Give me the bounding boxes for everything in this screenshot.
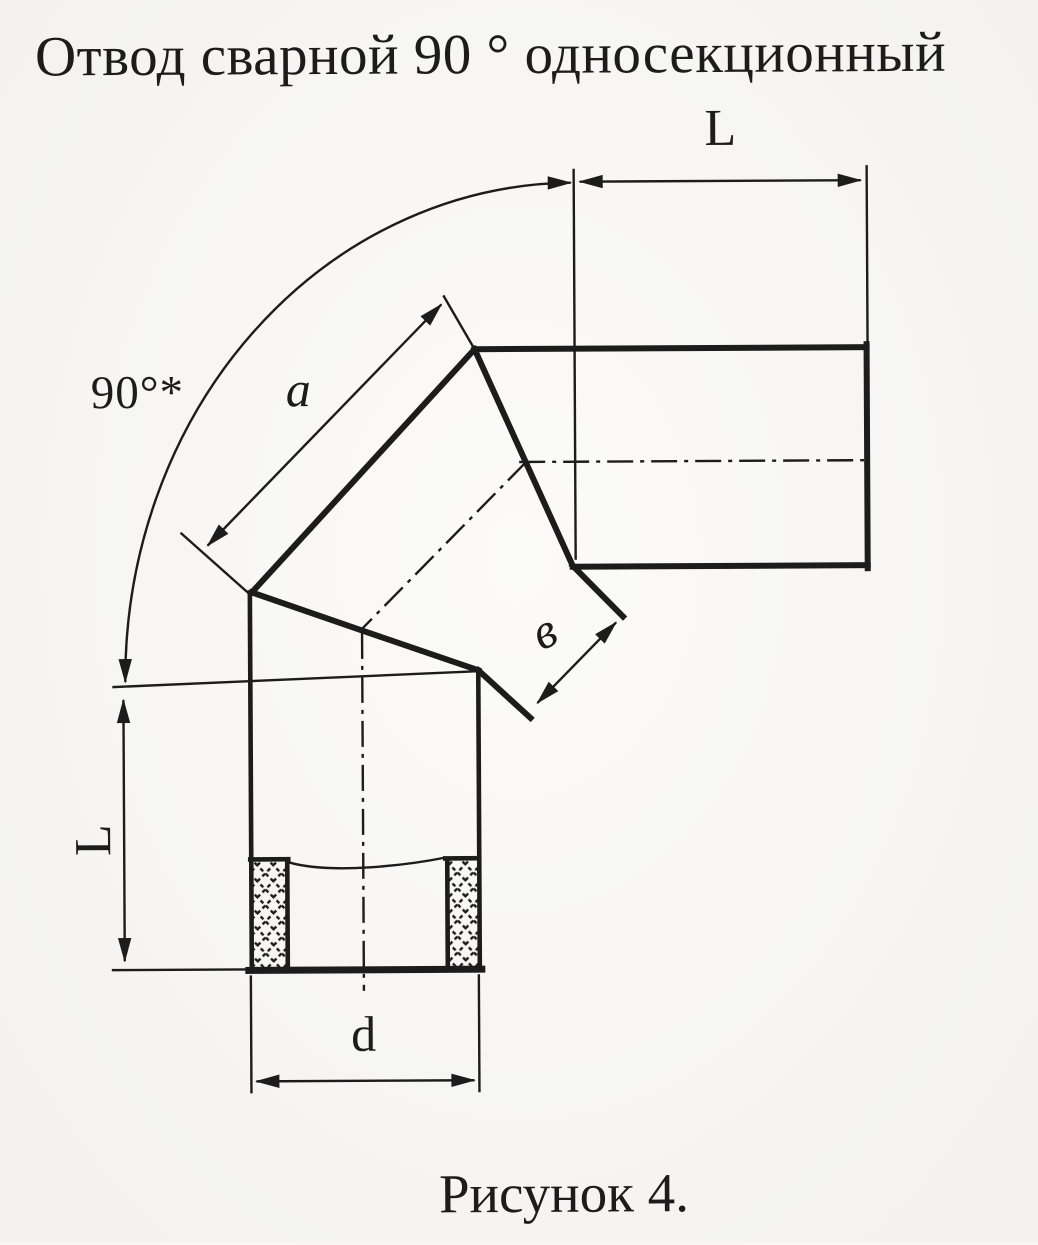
right-pipe-end-edge xyxy=(867,344,868,568)
upper-weld-seam xyxy=(475,349,573,567)
figure-caption: Рисунок 4. xyxy=(439,1165,689,1221)
label-length-top: L xyxy=(704,103,736,155)
vertical-pipe-left-edge xyxy=(250,592,252,970)
label-length-left: L xyxy=(68,805,120,875)
dimension-line-d xyxy=(256,1080,474,1081)
centerline-horizontal-pipe xyxy=(519,460,871,462)
extension-line-d-left xyxy=(251,975,252,1093)
extension-line-a-lower xyxy=(181,532,250,594)
extension-line-top-left xyxy=(574,169,576,560)
lower-weld-seam xyxy=(252,591,478,671)
dimension-line-L-left xyxy=(123,700,124,961)
extension-line-d-right xyxy=(479,974,480,1092)
extension-line-left-bottom xyxy=(112,969,248,970)
drawing-sheet: Отвод сварной 90 ° односекционный xyxy=(0,0,1038,1245)
right-pipe-bottom-edge xyxy=(573,565,868,567)
left-socket-hatch xyxy=(253,861,286,968)
extension-line-left-top xyxy=(112,671,478,687)
right-socket-inner-wall xyxy=(447,859,448,967)
label-side-a: a xyxy=(286,364,311,414)
extension-line-top-right xyxy=(867,165,868,344)
scanned-page: Отвод сварной 90 ° односекционный xyxy=(0,0,1038,1242)
centerline-vertical-pipe xyxy=(362,633,364,991)
centerline-miter-section xyxy=(359,462,527,631)
vertical-pipe-right-edge xyxy=(478,670,480,969)
angle-arc-90deg xyxy=(123,183,574,682)
right-pipe-top-edge xyxy=(475,347,867,349)
dimension-line-L-top xyxy=(580,180,861,181)
right-socket-hatch xyxy=(448,858,478,967)
left-socket-inner-wall xyxy=(287,862,288,968)
label-angle-90: 90°* xyxy=(91,370,185,417)
label-diameter-d: d xyxy=(351,1009,376,1059)
elbow-technical-drawing xyxy=(0,0,1038,1245)
miter-end-lower-edge xyxy=(478,670,530,718)
extension-line-a-upper xyxy=(443,295,474,349)
socket-inner-break-line xyxy=(288,857,446,868)
miter-end-upper-edge xyxy=(573,565,623,616)
